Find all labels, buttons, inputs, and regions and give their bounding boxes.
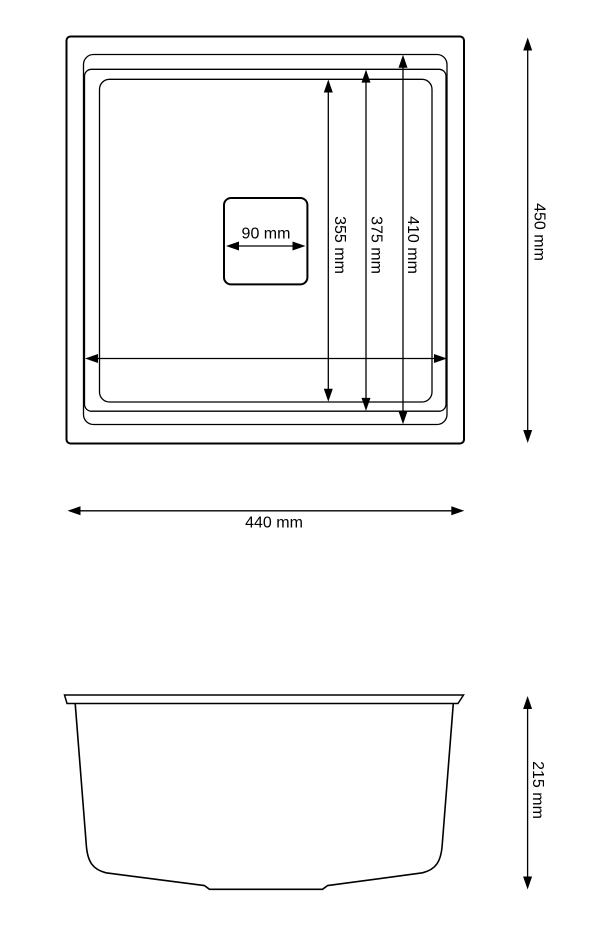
svg-text:375 mm: 375 mm [368, 216, 385, 274]
svg-text:410 mm: 410 mm [404, 216, 421, 274]
svg-text:440 mm: 440 mm [245, 515, 303, 532]
svg-text:450 mm: 450 mm [531, 203, 548, 261]
svg-text:215 mm: 215 mm [529, 761, 546, 819]
svg-text:355 mm: 355 mm [331, 216, 348, 274]
svg-text:90 mm: 90 mm [242, 226, 291, 243]
